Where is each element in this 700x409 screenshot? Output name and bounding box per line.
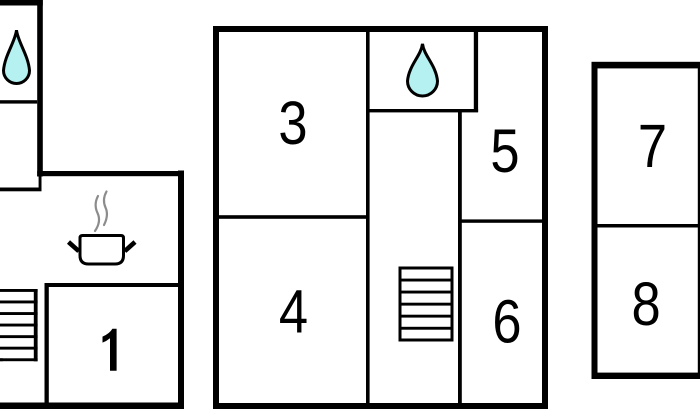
svg-text:8: 8 bbox=[632, 271, 661, 340]
svg-text:6: 6 bbox=[492, 288, 521, 357]
svg-text:5: 5 bbox=[490, 117, 519, 186]
svg-text:3: 3 bbox=[278, 89, 307, 158]
svg-text:7: 7 bbox=[638, 112, 667, 181]
svg-text:4: 4 bbox=[279, 278, 308, 347]
